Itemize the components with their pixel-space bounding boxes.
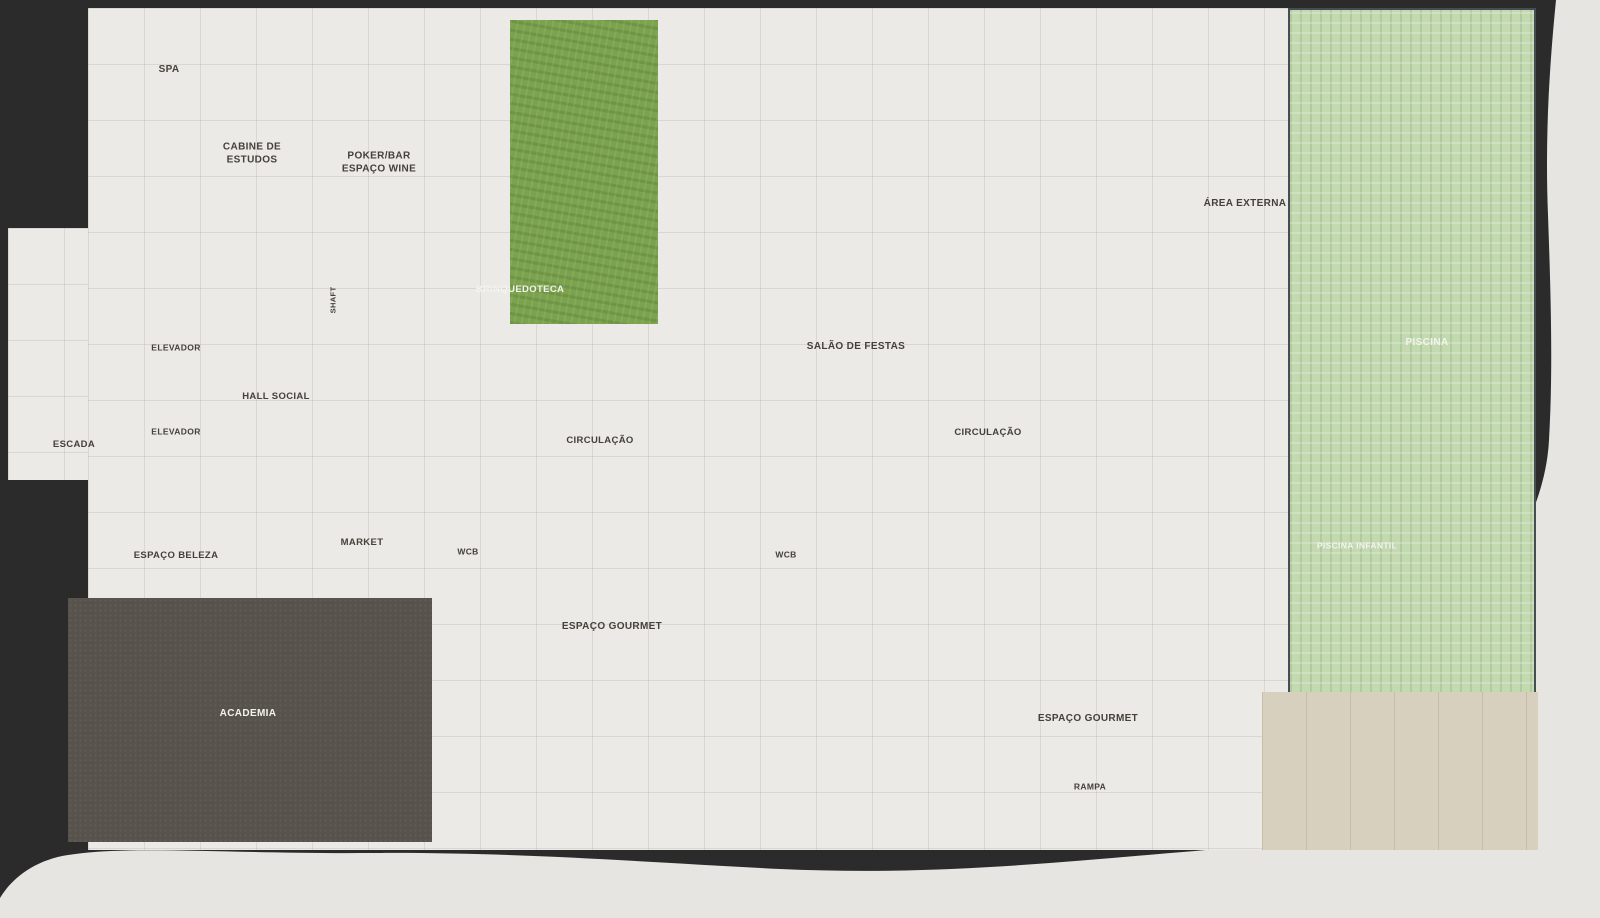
room-label-elevador-1: ELEVADOR [151, 343, 200, 354]
room-label-spa: SPA [159, 64, 180, 77]
room-label-circulacao-2: CIRCULAÇÃO [954, 427, 1021, 439]
room-label-espaco-gourmet-1: ESPAÇO GOURMET [562, 621, 662, 634]
room-label-brinquedoteca: BRINQUEDOTECA [476, 284, 564, 296]
room-label-cabine-de-estudos: CABINE DE ESTUDOS [220, 142, 284, 167]
room-label-poker-bar-espaco-wine: POKER/BAR ESPAÇO WINE [331, 151, 427, 176]
plan-canvas [0, 0, 1600, 918]
room-label-academia: ACADEMIA [220, 708, 277, 721]
ramp-label: RAMPA [1074, 782, 1106, 793]
room-label-elevador-2: ELEVADOR [151, 427, 200, 438]
room-label-area-externa: ÁREA EXTERNA [1204, 198, 1287, 211]
floor-pool-deck [1288, 8, 1536, 696]
floor-brinquedoteca [510, 20, 658, 324]
room-label-hall-social: HALL SOCIAL [242, 391, 310, 403]
room-label-espaco-beleza: ESPAÇO BELEZA [134, 550, 219, 562]
room-label-wcb-1: WCB [457, 547, 478, 558]
room-label-market: MARKET [341, 537, 384, 549]
room-label-espaco-gourmet-2: ESPAÇO GOURMET [1038, 713, 1138, 726]
room-label-salao-de-festas: SALÃO DE FESTAS [807, 341, 905, 354]
floor-plan-render: SPA CABINE DE ESTUDOS POKER/BAR ESPAÇO W… [0, 0, 1600, 918]
floor-sun-deck [1262, 692, 1538, 850]
room-label-piscina: PISCINA [1405, 337, 1448, 350]
room-label-piscina-infantil: PISCINA INFANTIL [1317, 541, 1397, 552]
room-label-shaft: SHAFT [328, 287, 337, 314]
room-label-escada: ESCADA [53, 439, 95, 451]
room-label-circulacao-1: CIRCULAÇÃO [566, 435, 633, 447]
room-label-wcb-2: WCB [775, 550, 796, 561]
